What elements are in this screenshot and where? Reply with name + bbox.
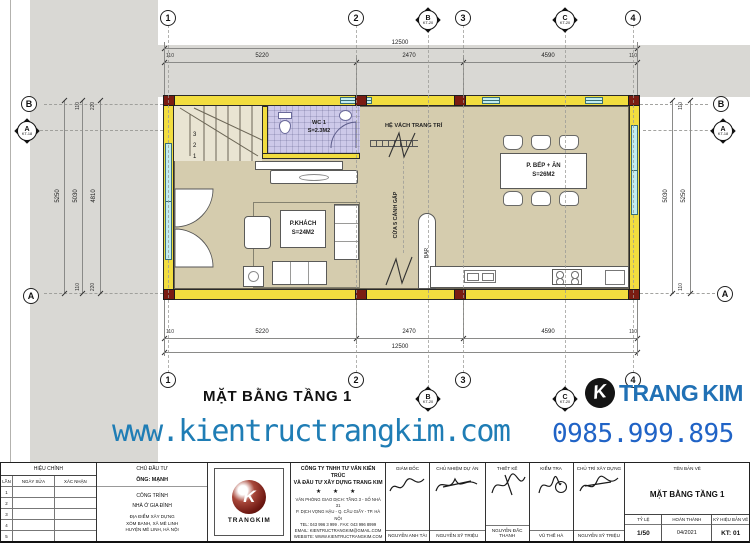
wall-bottom	[163, 289, 640, 300]
dining-chair	[503, 135, 523, 150]
section-marker-c-bottom: CKT-20	[552, 386, 578, 412]
scale-value: 1/50	[625, 525, 661, 541]
trangkim-logo-icon: K	[583, 376, 617, 410]
signature	[487, 471, 527, 525]
column	[454, 289, 466, 300]
drawing-name: MẶT BẰNG TẦNG 1	[625, 474, 749, 515]
company-name: CÔNG TY TNHH TƯ VẤN KIẾN TRÚC VÀ ĐẦU TƯ …	[293, 466, 383, 486]
stair-step-number: 3	[193, 132, 196, 138]
grid-bubble-3-bottom: 3	[455, 372, 471, 388]
grid-bubble-a-left: A	[23, 288, 39, 304]
revision-row: 3	[1, 509, 96, 520]
section-marker-a-left: AKT-18	[14, 118, 40, 144]
revision-row: 5	[1, 531, 96, 541]
brand-text-kim: KIM	[702, 380, 743, 407]
folding-door-bottom	[384, 255, 414, 287]
signature-cell-construction-lead: CHỦ TRÌ XÂY DỰNG NGUYỄN SỸ TRIỆU	[573, 463, 625, 541]
date-value: 04/2021	[662, 525, 711, 541]
folding-door-label: CỬA 5 CÁNH GẤP	[393, 192, 399, 239]
wall-top	[163, 95, 640, 106]
column	[163, 289, 175, 300]
stars-decoration: ★ ★ ★	[293, 486, 383, 497]
signature-cell-project-manager: CHỦ NHIỆM DỰ ÁN NGUYỄN SỸ TRIỆU	[429, 463, 485, 541]
website-watermark: www.kientructrangkim.com	[112, 414, 509, 449]
section-marker-b-top: BKT-20	[415, 7, 441, 33]
column	[454, 95, 466, 106]
stove-icon	[552, 269, 582, 285]
phone-number: 0985.999.895	[552, 419, 734, 449]
kitchen-sink	[464, 270, 496, 283]
signature	[387, 471, 427, 530]
signature	[531, 471, 571, 530]
project-name: NHÀ Ở GIA ĐÌNH	[97, 502, 208, 513]
fridge	[605, 270, 625, 285]
sheet-edge-line	[10, 0, 11, 462]
section-marker-b-bottom: BKT-20	[415, 386, 441, 412]
window	[585, 97, 603, 104]
floor-plan: 3 2 1 WC 1S=2.3M2 P.KH	[163, 95, 640, 300]
grid-bubble-a-right: A	[717, 286, 733, 302]
folding-door-track	[403, 161, 404, 253]
trangkim-sphere-logo-icon: K	[232, 480, 266, 514]
dining-chair	[531, 191, 551, 206]
section-marker-a-right: AKT-18	[710, 118, 736, 144]
dim-total-bottom: 12500	[392, 344, 409, 350]
code-value: KT: 01	[712, 525, 749, 541]
revision-col-lan: LẦN	[1, 476, 13, 486]
brand-text-trang: TRANG	[619, 380, 698, 407]
dining-chair	[559, 191, 579, 206]
staircase: 3 2 1	[174, 106, 262, 161]
living-room-label: P.KHÁCHS=24M2	[280, 210, 326, 248]
window	[482, 97, 500, 104]
grid-bubble-1-bottom: 1	[160, 372, 176, 388]
revision-col-date: NGÀY SỬA	[13, 476, 55, 486]
lamp-table	[243, 266, 264, 287]
revision-row: 2	[1, 498, 96, 509]
kitchen-counter	[430, 266, 629, 288]
client-name: ÔNG: MẠNH	[97, 475, 208, 487]
grid-bubble-2-top: 2	[348, 10, 364, 26]
scale-cell: TỶ LỆ 1/50	[625, 515, 662, 541]
plan-title: MẶT BẰNG TẦNG 1	[203, 388, 352, 405]
brand-logo: K TRANGKIM	[585, 378, 743, 408]
grid-bubble-3-top: 3	[455, 10, 471, 26]
revision-table: HIỆU CHỈNH LẦN NGÀY SỬA XÁC NHẬN 1 2 3 4…	[1, 463, 96, 541]
revision-header: HIỆU CHỈNH	[1, 463, 96, 476]
wc-wall	[262, 106, 268, 159]
project-header: CÔNG TRÌNH	[97, 487, 208, 502]
signature-cell-designer: THIẾT KẾ NGUYỄN ĐẮC THANH	[485, 463, 529, 541]
dining-table: P. BẾP + ĂNS=26M2	[500, 153, 587, 189]
column	[163, 95, 175, 106]
section-marker-c-top: CKT-20	[552, 7, 578, 33]
wc-label: WC 1S=2.3M2	[281, 119, 357, 136]
folding-door-top	[387, 131, 417, 159]
grid-bubble-1-top: 1	[160, 10, 176, 26]
column	[628, 289, 640, 300]
signature	[433, 471, 481, 530]
dining-chair	[531, 135, 551, 150]
revision-row: 1	[1, 487, 96, 498]
grid-bubble-2-bottom: 2	[348, 372, 364, 388]
dim-total-top: 12500	[392, 40, 409, 46]
revision-row: 4	[1, 520, 96, 531]
sofa-small	[272, 261, 327, 285]
armchair	[244, 216, 271, 249]
tv-console	[255, 161, 343, 170]
logo-word: TRANGKIM	[228, 517, 271, 524]
grid-bubble-4-top: 4	[625, 10, 641, 26]
code-cell: KÝ HIỆU BẢN VẼ KT: 01	[712, 515, 749, 541]
drawing-name-label: TÊN BẢN VẼ	[625, 463, 749, 474]
company-info: CÔNG TY TNHH TƯ VẤN KIẾN TRÚC VÀ ĐẦU TƯ …	[290, 463, 385, 541]
client-header: CHỦ ĐẦU TƯ	[97, 465, 208, 475]
company-logo-cell: K TRANGKIM	[207, 463, 290, 541]
dining-chair	[503, 191, 523, 206]
signature-cell-director: GIÁM ĐỐC NGUYỄN ANH TÀI	[385, 463, 429, 541]
project-location: ĐỊA ĐIỂM XÂY DỰNG XÓM BANH, XÃ MÊ LINH H…	[97, 512, 208, 532]
gray-band-top	[158, 45, 750, 97]
signature	[577, 471, 621, 530]
signature-cell-checker: KIỂM TRA VŨ THẾ HÀ	[529, 463, 573, 541]
column	[628, 95, 640, 106]
company-address: VĂN PHÒNG GIAO DỊCH: TẦNG 3 - SỐ NHÀ 31 …	[293, 497, 383, 540]
grid-bubble-b-right: B	[713, 96, 729, 112]
dining-chair	[559, 135, 579, 150]
title-block: HIỆU CHỈNH LẦN NGÀY SỬA XÁC NHẬN 1 2 3 4…	[0, 462, 750, 543]
company-logo-box: K TRANGKIM	[214, 468, 284, 536]
client-block: CHỦ ĐẦU TƯ ÔNG: MẠNH CÔNG TRÌNH NHÀ Ở GI…	[96, 463, 208, 541]
stair-step-number: 2	[193, 143, 196, 149]
grid-bubble-b-left: B	[21, 96, 37, 112]
drawing-sheet: 12500 110 5220 2470 4590 110 110 5220 24…	[0, 0, 750, 545]
revision-col-confirm: XÁC NHẬN	[55, 476, 96, 486]
drawing-info: TÊN BẢN VẼ MẶT BẰNG TẦNG 1 TỶ LỆ 1/50 HO…	[624, 463, 749, 541]
wc-wall	[262, 153, 360, 159]
stair-step-number: 1	[193, 154, 196, 160]
bar-label: BAR	[424, 248, 430, 258]
gray-band-left	[30, 0, 158, 462]
stair-treads	[174, 106, 262, 161]
basin-counter	[270, 170, 358, 184]
date-cell: HOÀN THÀNH 04/2021	[662, 515, 712, 541]
entrance-double-door	[171, 187, 217, 269]
deco-wall-label: HỆ VÁCH TRANG TRÍ	[385, 122, 442, 130]
